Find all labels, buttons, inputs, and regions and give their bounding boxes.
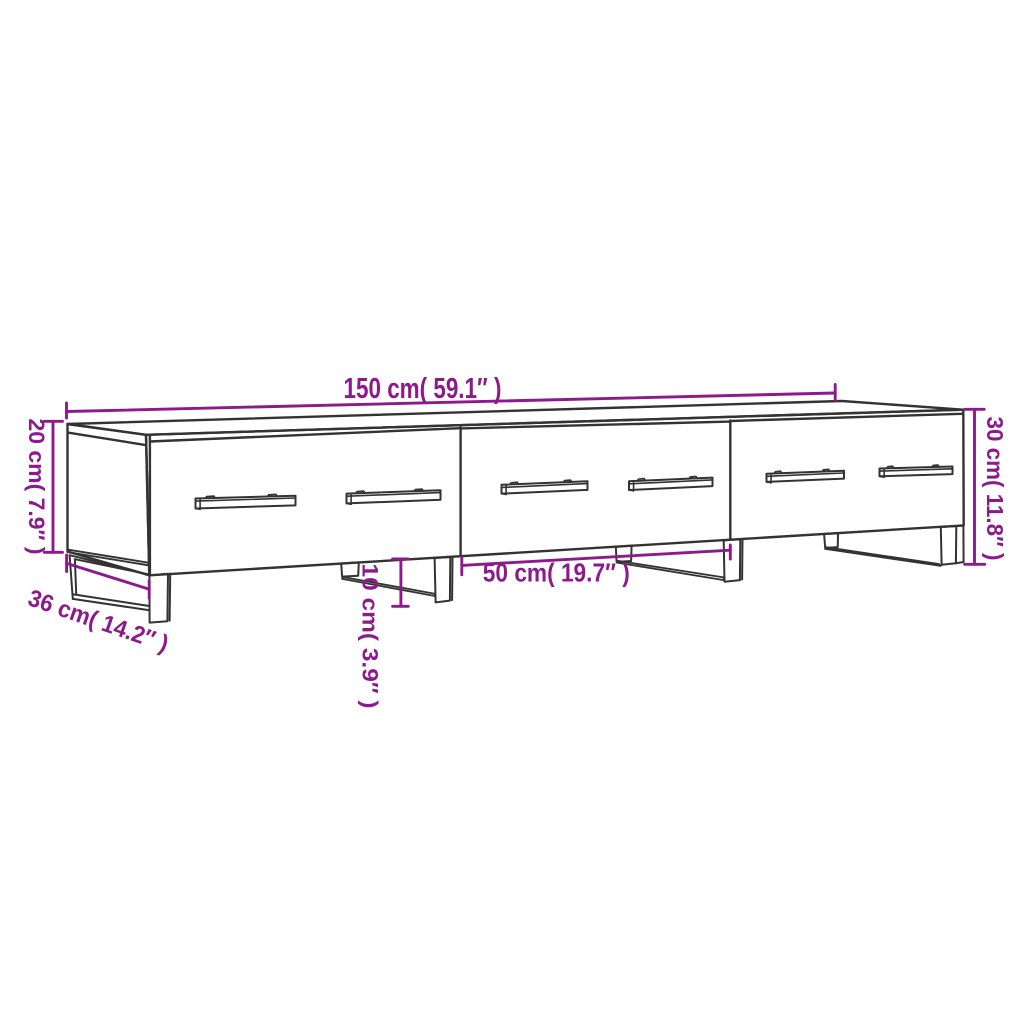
svg-text:50 cm( 19.7″ ): 50 cm( 19.7″ ) <box>483 558 630 588</box>
svg-text:10 cm( 3.9″ ): 10 cm( 3.9″ ) <box>358 564 383 709</box>
svg-text:30 cm( 11.8″ ): 30 cm( 11.8″ ) <box>982 417 1008 561</box>
svg-text:150 cm( 59.1″ ): 150 cm( 59.1″ ) <box>344 373 502 405</box>
svg-text:20 cm( 7.9″ ): 20 cm( 7.9″ ) <box>24 419 49 555</box>
